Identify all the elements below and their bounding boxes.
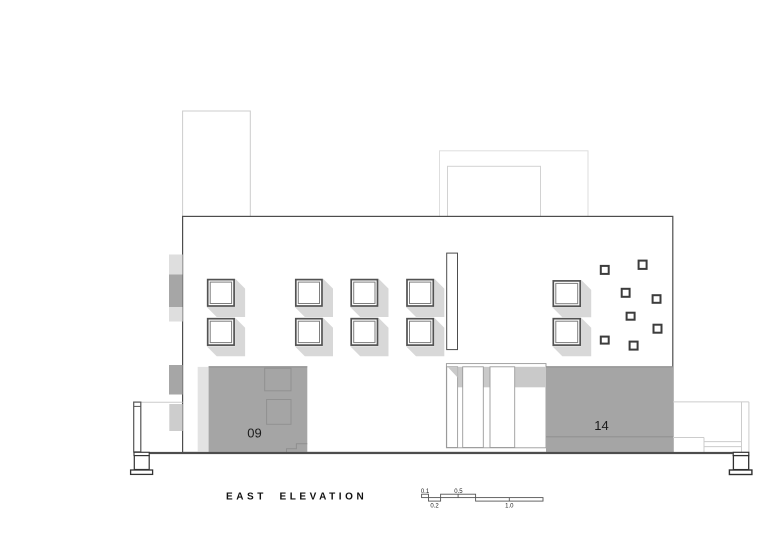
svg-text:EAST ELEVATION: EAST ELEVATION bbox=[226, 492, 367, 503]
svg-text:1.0: 1.0 bbox=[505, 503, 514, 509]
svg-text:0.5: 0.5 bbox=[454, 489, 463, 495]
svg-text:14: 14 bbox=[594, 418, 608, 433]
svg-text:0.2: 0.2 bbox=[430, 503, 439, 509]
svg-text:0.1: 0.1 bbox=[421, 489, 430, 495]
svg-text:09: 09 bbox=[247, 425, 261, 440]
